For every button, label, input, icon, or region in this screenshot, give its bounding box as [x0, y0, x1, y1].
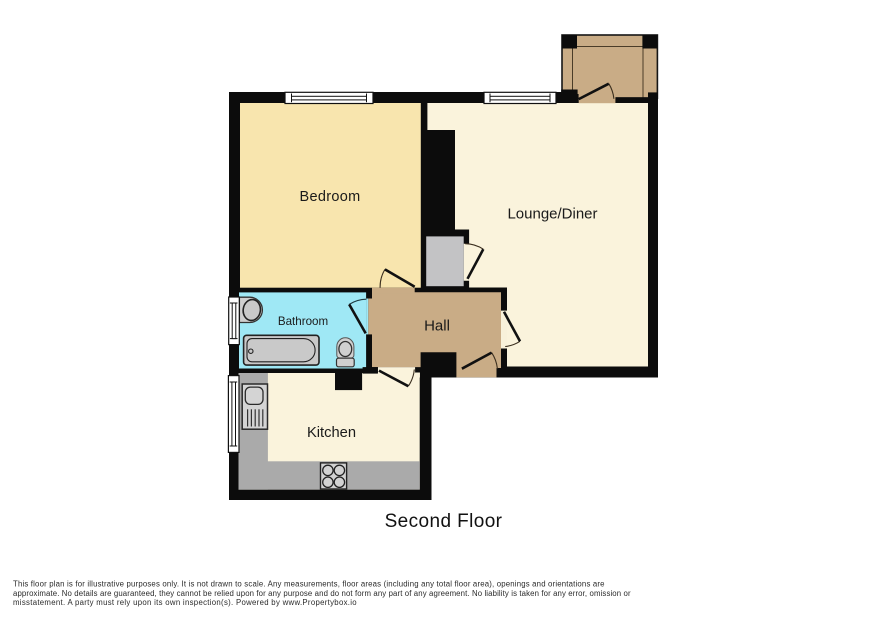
svg-text:approximate. No details are gu: approximate. No details are guaranteed, …: [13, 589, 631, 598]
svg-text:misstatement. A party must rel: misstatement. A party must rely upon its…: [13, 598, 357, 607]
svg-text:Lounge/Diner: Lounge/Diner: [507, 206, 597, 223]
svg-text:Kitchen: Kitchen: [307, 425, 356, 441]
svg-text:Second Floor: Second Floor: [385, 511, 503, 532]
svg-text:This floor plan is for illustr: This floor plan is for illustrative purp…: [13, 580, 605, 589]
svg-text:Bedroom: Bedroom: [300, 189, 361, 205]
svg-text:Hall: Hall: [424, 318, 450, 335]
svg-text:Bathroom: Bathroom: [278, 315, 328, 328]
